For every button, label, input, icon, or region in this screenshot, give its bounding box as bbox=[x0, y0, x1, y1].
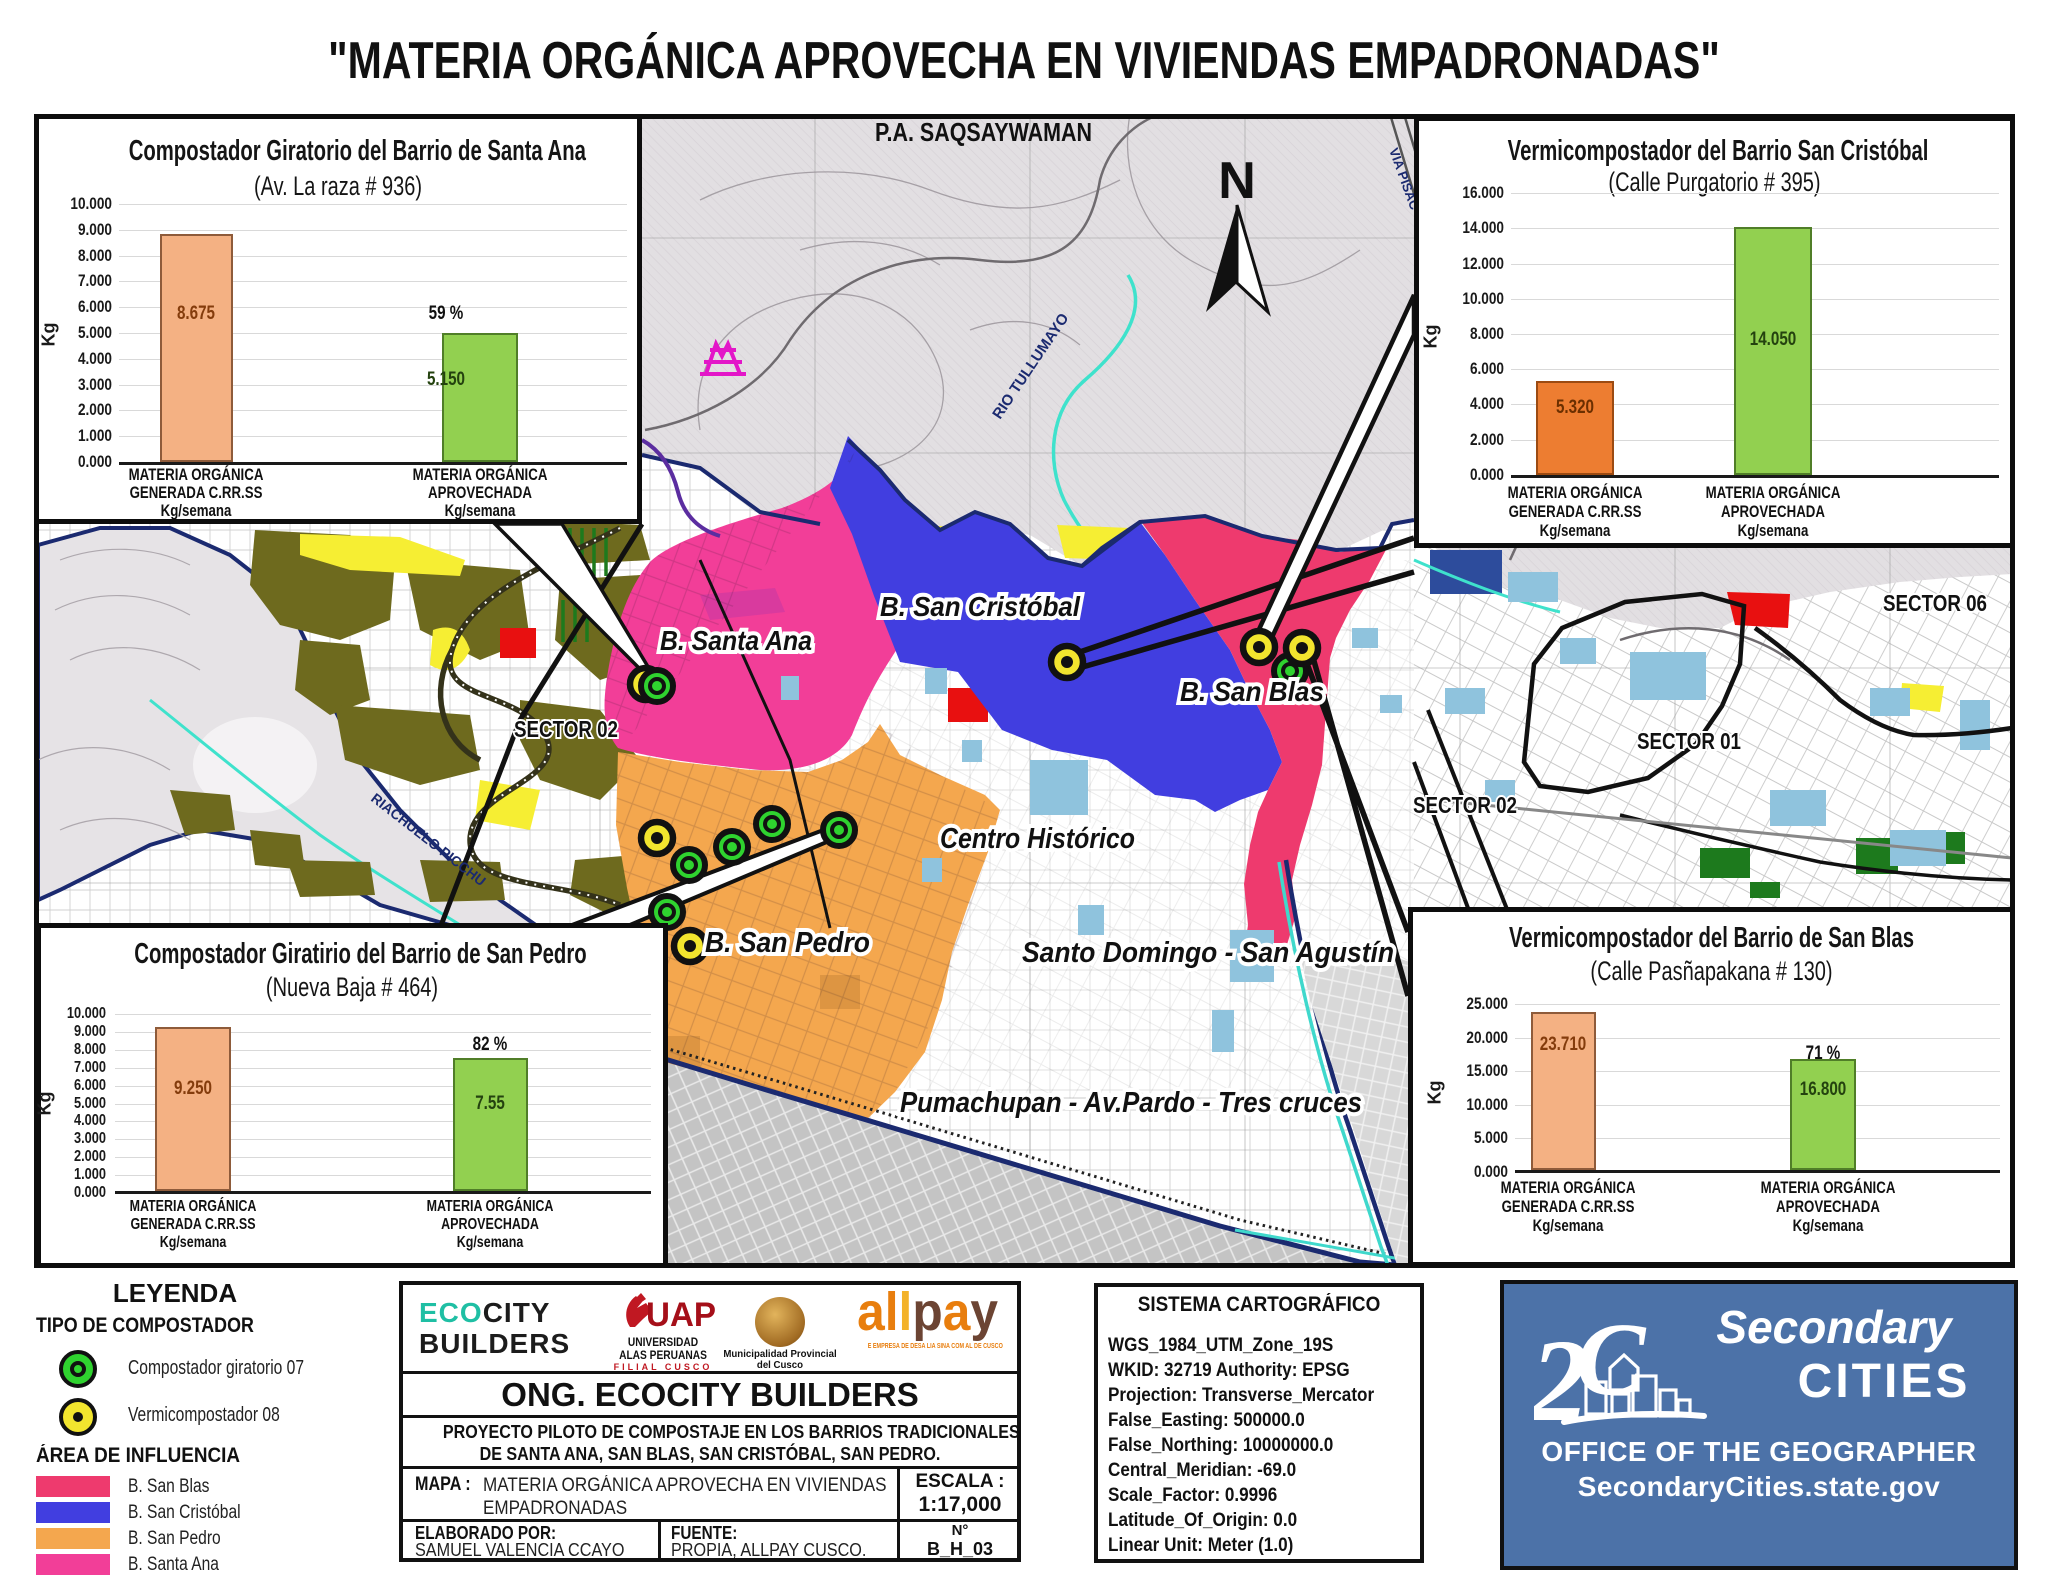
svg-text:UAP: UAP bbox=[646, 1296, 716, 1331]
svg-text:SECTOR 02: SECTOR 02 bbox=[514, 716, 618, 742]
svg-text:SECTOR 06: SECTOR 06 bbox=[1883, 590, 1987, 616]
svg-text:B. San Blas: B. San Blas bbox=[1180, 676, 1324, 707]
svg-text:B. San Cristóbal: B. San Cristóbal bbox=[880, 591, 1081, 622]
svg-text:Centro Histórico: Centro Histórico bbox=[940, 823, 1135, 855]
svg-text:B. Santa Ana: B. Santa Ana bbox=[660, 625, 812, 656]
svg-text:Pumachupan - Av.Pardo - Tres c: Pumachupan - Av.Pardo - Tres cruces bbox=[900, 1087, 1362, 1119]
svg-text:P.A. SAQSAYWAMAN: P.A. SAQSAYWAMAN bbox=[875, 117, 1092, 147]
svg-text:N: N bbox=[1218, 152, 1256, 210]
svg-text:SECTOR 02: SECTOR 02 bbox=[1413, 792, 1517, 818]
svg-text:SECTOR 01: SECTOR 01 bbox=[1637, 728, 1741, 754]
svg-text:B. San Pedro: B. San Pedro bbox=[705, 927, 870, 959]
svg-text:Santo Domingo - San Agustín: Santo Domingo - San Agustín bbox=[1022, 937, 1394, 969]
